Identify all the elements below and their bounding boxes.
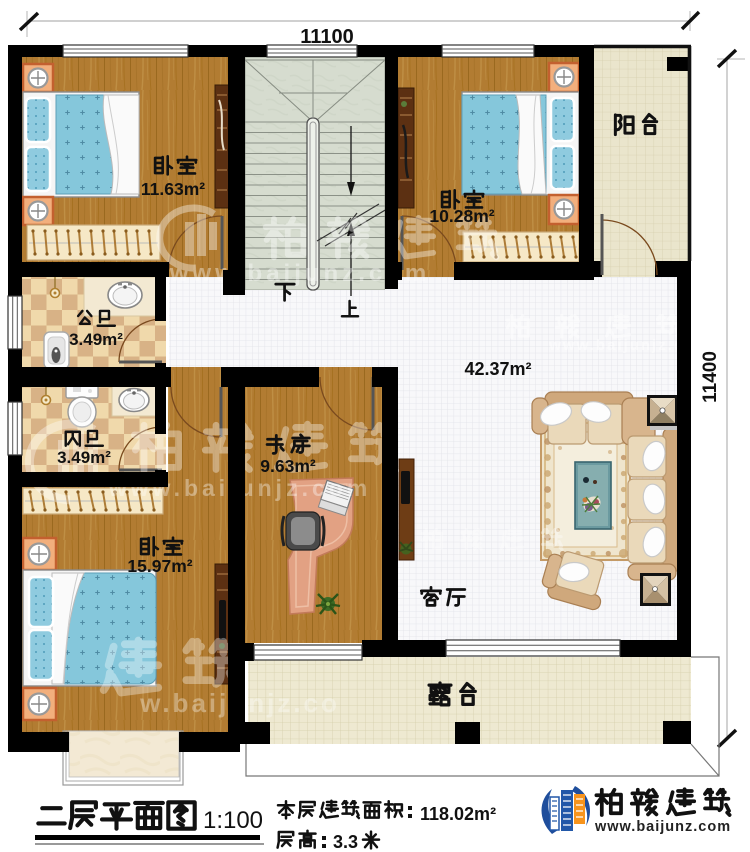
svg-text:3.49m²: 3.49m² <box>57 448 111 467</box>
svg-text:1:100: 1:100 <box>203 807 263 834</box>
svg-text:10.28m²: 10.28m² <box>429 206 494 226</box>
svg-text:9.63m²: 9.63m² <box>260 456 316 476</box>
svg-text:3.3: 3.3 <box>333 832 358 852</box>
svg-text:11400: 11400 <box>700 351 721 403</box>
svg-text:3.49m²: 3.49m² <box>69 330 123 349</box>
svg-text:11.63m²: 11.63m² <box>141 179 205 199</box>
svg-text:118.02m²: 118.02m² <box>420 804 496 824</box>
svg-text:15.97m²: 15.97m² <box>127 556 192 576</box>
svg-text:www.baijunz.com: www.baijunz.com <box>594 819 731 835</box>
svg-text:42.37m²: 42.37m² <box>464 359 531 379</box>
